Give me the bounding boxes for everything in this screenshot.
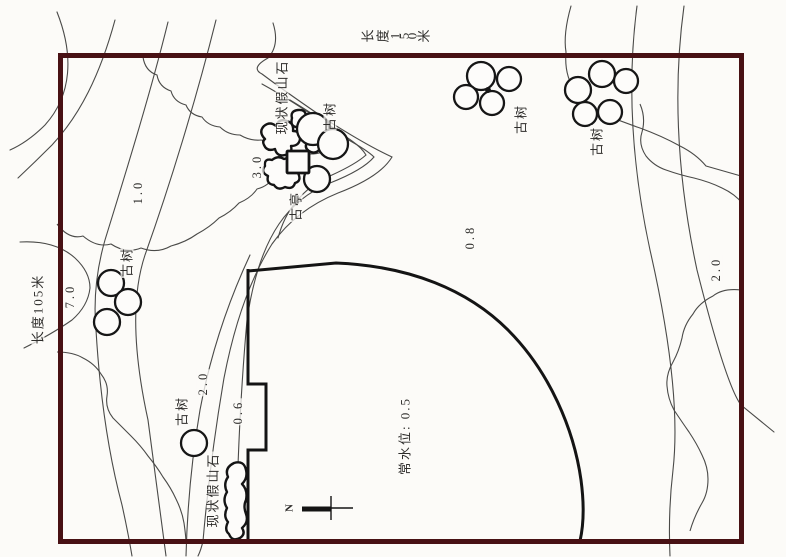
tree-left-label: 古树 [121,246,134,278]
lake-outline [248,263,583,542]
tree [565,77,591,103]
dimension-left-label: 长度105米 [32,273,45,346]
tree-top-right-label: 古树 [591,125,604,157]
dimension-top-label: 长度150米 [361,30,432,43]
contour [632,6,675,556]
tree-mass-top-right-edge [640,104,743,204]
lake-arc [248,263,583,541]
contour-label-2-0-left: 2.0 [197,370,210,397]
tree-mass-right [667,290,741,531]
tree [454,85,478,109]
pavilion-symbol [287,151,309,173]
tree [589,61,615,87]
contour-label-7-0: 7.0 [64,283,77,310]
tree-center-dot [486,88,490,92]
site-plan-canvas [0,0,786,557]
tree-bottom-label: 古树 [176,395,189,427]
tree [318,129,348,159]
water-level-label: 常水位: 0.5 [399,396,412,476]
contour-label-0-6: 0.6 [232,399,245,426]
tree [614,69,638,93]
lake-bank-line [248,269,266,542]
contour-label-3-0: 3.0 [251,153,264,180]
tree [115,289,141,315]
site-plan: 长度150米 长度105米 1.0 3.0 7.0 2.0 0.6 0.8 2.… [0,0,786,557]
tree [598,100,622,124]
tree [480,91,504,115]
contour [565,6,571,52]
tree-mass-lower-left [57,352,186,543]
tree [181,430,207,456]
north-arrow [302,496,353,520]
contour-label-2-0-right: 2.0 [710,256,723,283]
contour [678,6,774,432]
pavilion-label: 古亭 [290,190,303,222]
tree-top-middle-label: 古树 [515,103,528,135]
tree [94,309,120,335]
rockery-bottom-label: 现状假山石 [207,451,220,528]
north-label: N [285,503,296,513]
tree-pavilion-label: 古树 [324,100,337,132]
rockery-strip-bottom [225,462,247,539]
tree [497,67,521,91]
contour-label-0-8: 0.8 [464,224,477,251]
rockery-top-label: 现状假山石 [276,58,289,135]
tree [573,102,597,126]
contour [136,20,216,556]
contour-label-1-0: 1.0 [132,179,145,206]
